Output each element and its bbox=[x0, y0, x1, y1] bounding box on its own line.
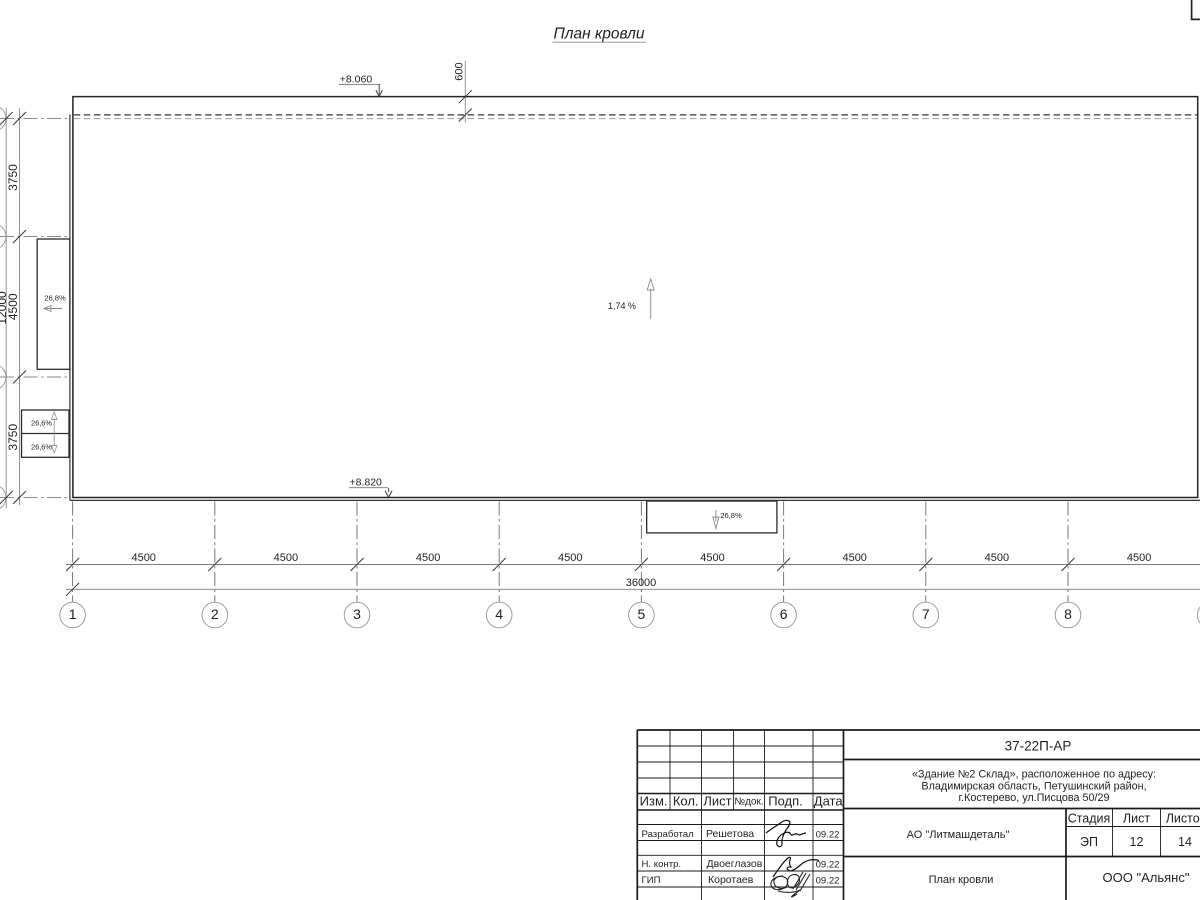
svg-text:Подп.: Подп. bbox=[768, 794, 803, 809]
svg-text:4500: 4500 bbox=[416, 552, 440, 564]
svg-text:Стадия: Стадия bbox=[1068, 812, 1111, 826]
svg-text:26,6%: 26,6% bbox=[31, 418, 52, 427]
svg-text:09.22: 09.22 bbox=[816, 829, 840, 840]
svg-text:ЭП: ЭП bbox=[1080, 835, 1098, 849]
svg-text:09.22: 09.22 bbox=[816, 859, 840, 870]
svg-text:26,8%: 26,8% bbox=[44, 293, 66, 302]
svg-text:Листов: Листов bbox=[1166, 812, 1200, 826]
svg-text:4500: 4500 bbox=[700, 552, 724, 564]
svg-text:3750: 3750 bbox=[6, 164, 20, 191]
svg-text:26,8%: 26,8% bbox=[720, 511, 742, 520]
svg-text:Кол.: Кол. bbox=[673, 794, 699, 809]
svg-text:4500: 4500 bbox=[558, 552, 582, 564]
svg-text:г.Костерево, ул.Писцова 50/29: г.Костерево, ул.Писцова 50/29 bbox=[958, 792, 1109, 804]
svg-text:+8.820: +8.820 bbox=[349, 477, 382, 489]
svg-text:6: 6 bbox=[780, 606, 788, 622]
svg-text:АО "Литмашдеталь": АО "Литмашдеталь" bbox=[907, 829, 1010, 841]
svg-text:36000: 36000 bbox=[626, 577, 657, 589]
svg-text:600: 600 bbox=[453, 62, 465, 80]
svg-text:ООО "Альянс": ООО "Альянс" bbox=[1103, 870, 1190, 885]
svg-text:14: 14 bbox=[1178, 835, 1192, 849]
svg-text:Коротаев: Коротаев bbox=[708, 874, 754, 886]
svg-text:37-22П-АР: 37-22П-АР bbox=[1005, 739, 1072, 754]
svg-text:План кровли: План кровли bbox=[554, 26, 645, 43]
svg-text:Изм.: Изм. bbox=[640, 794, 668, 809]
svg-text:«Здание №2 Склад», расположенн: «Здание №2 Склад», расположенное по адре… bbox=[912, 769, 1156, 781]
svg-text:4500: 4500 bbox=[274, 552, 298, 564]
svg-text:8: 8 bbox=[1064, 606, 1072, 622]
svg-text:План кровли: План кровли bbox=[929, 874, 994, 886]
svg-text:Владимирская область, Петушинс: Владимирская область, Петушинский район, bbox=[921, 780, 1146, 792]
svg-text:4500: 4500 bbox=[842, 552, 866, 564]
svg-text:2: 2 bbox=[211, 606, 219, 622]
svg-text:№док.: №док. bbox=[734, 797, 763, 808]
svg-text:Лист: Лист bbox=[703, 794, 731, 809]
svg-text:12: 12 bbox=[1130, 835, 1144, 849]
svg-text:12000: 12000 bbox=[0, 291, 9, 325]
svg-text:4500: 4500 bbox=[1127, 552, 1151, 564]
svg-text:09.22: 09.22 bbox=[816, 875, 840, 886]
svg-text:Дата: Дата bbox=[814, 794, 844, 809]
svg-text:Лист: Лист bbox=[1123, 812, 1150, 826]
svg-text:1: 1 bbox=[69, 606, 77, 622]
svg-text:Разработал: Разработал bbox=[642, 829, 694, 840]
svg-text:3750: 3750 bbox=[6, 424, 20, 451]
svg-text:4500: 4500 bbox=[985, 552, 1009, 564]
svg-text:5: 5 bbox=[638, 606, 646, 622]
svg-text:4: 4 bbox=[495, 606, 503, 622]
svg-text:Н. контр.: Н. контр. bbox=[642, 859, 682, 870]
svg-text:ГИП: ГИП bbox=[642, 875, 661, 886]
svg-text:26,6%: 26,6% bbox=[31, 442, 52, 451]
svg-text:Двоеглазов: Двоеглазов bbox=[707, 858, 763, 870]
svg-text:Решетова: Решетова bbox=[706, 828, 754, 840]
svg-text:+8.060: +8.060 bbox=[340, 73, 373, 85]
svg-text:4500: 4500 bbox=[131, 552, 155, 564]
svg-text:3: 3 bbox=[353, 606, 361, 622]
svg-text:1,74 %: 1,74 % bbox=[608, 301, 636, 311]
svg-text:7: 7 bbox=[922, 606, 930, 622]
